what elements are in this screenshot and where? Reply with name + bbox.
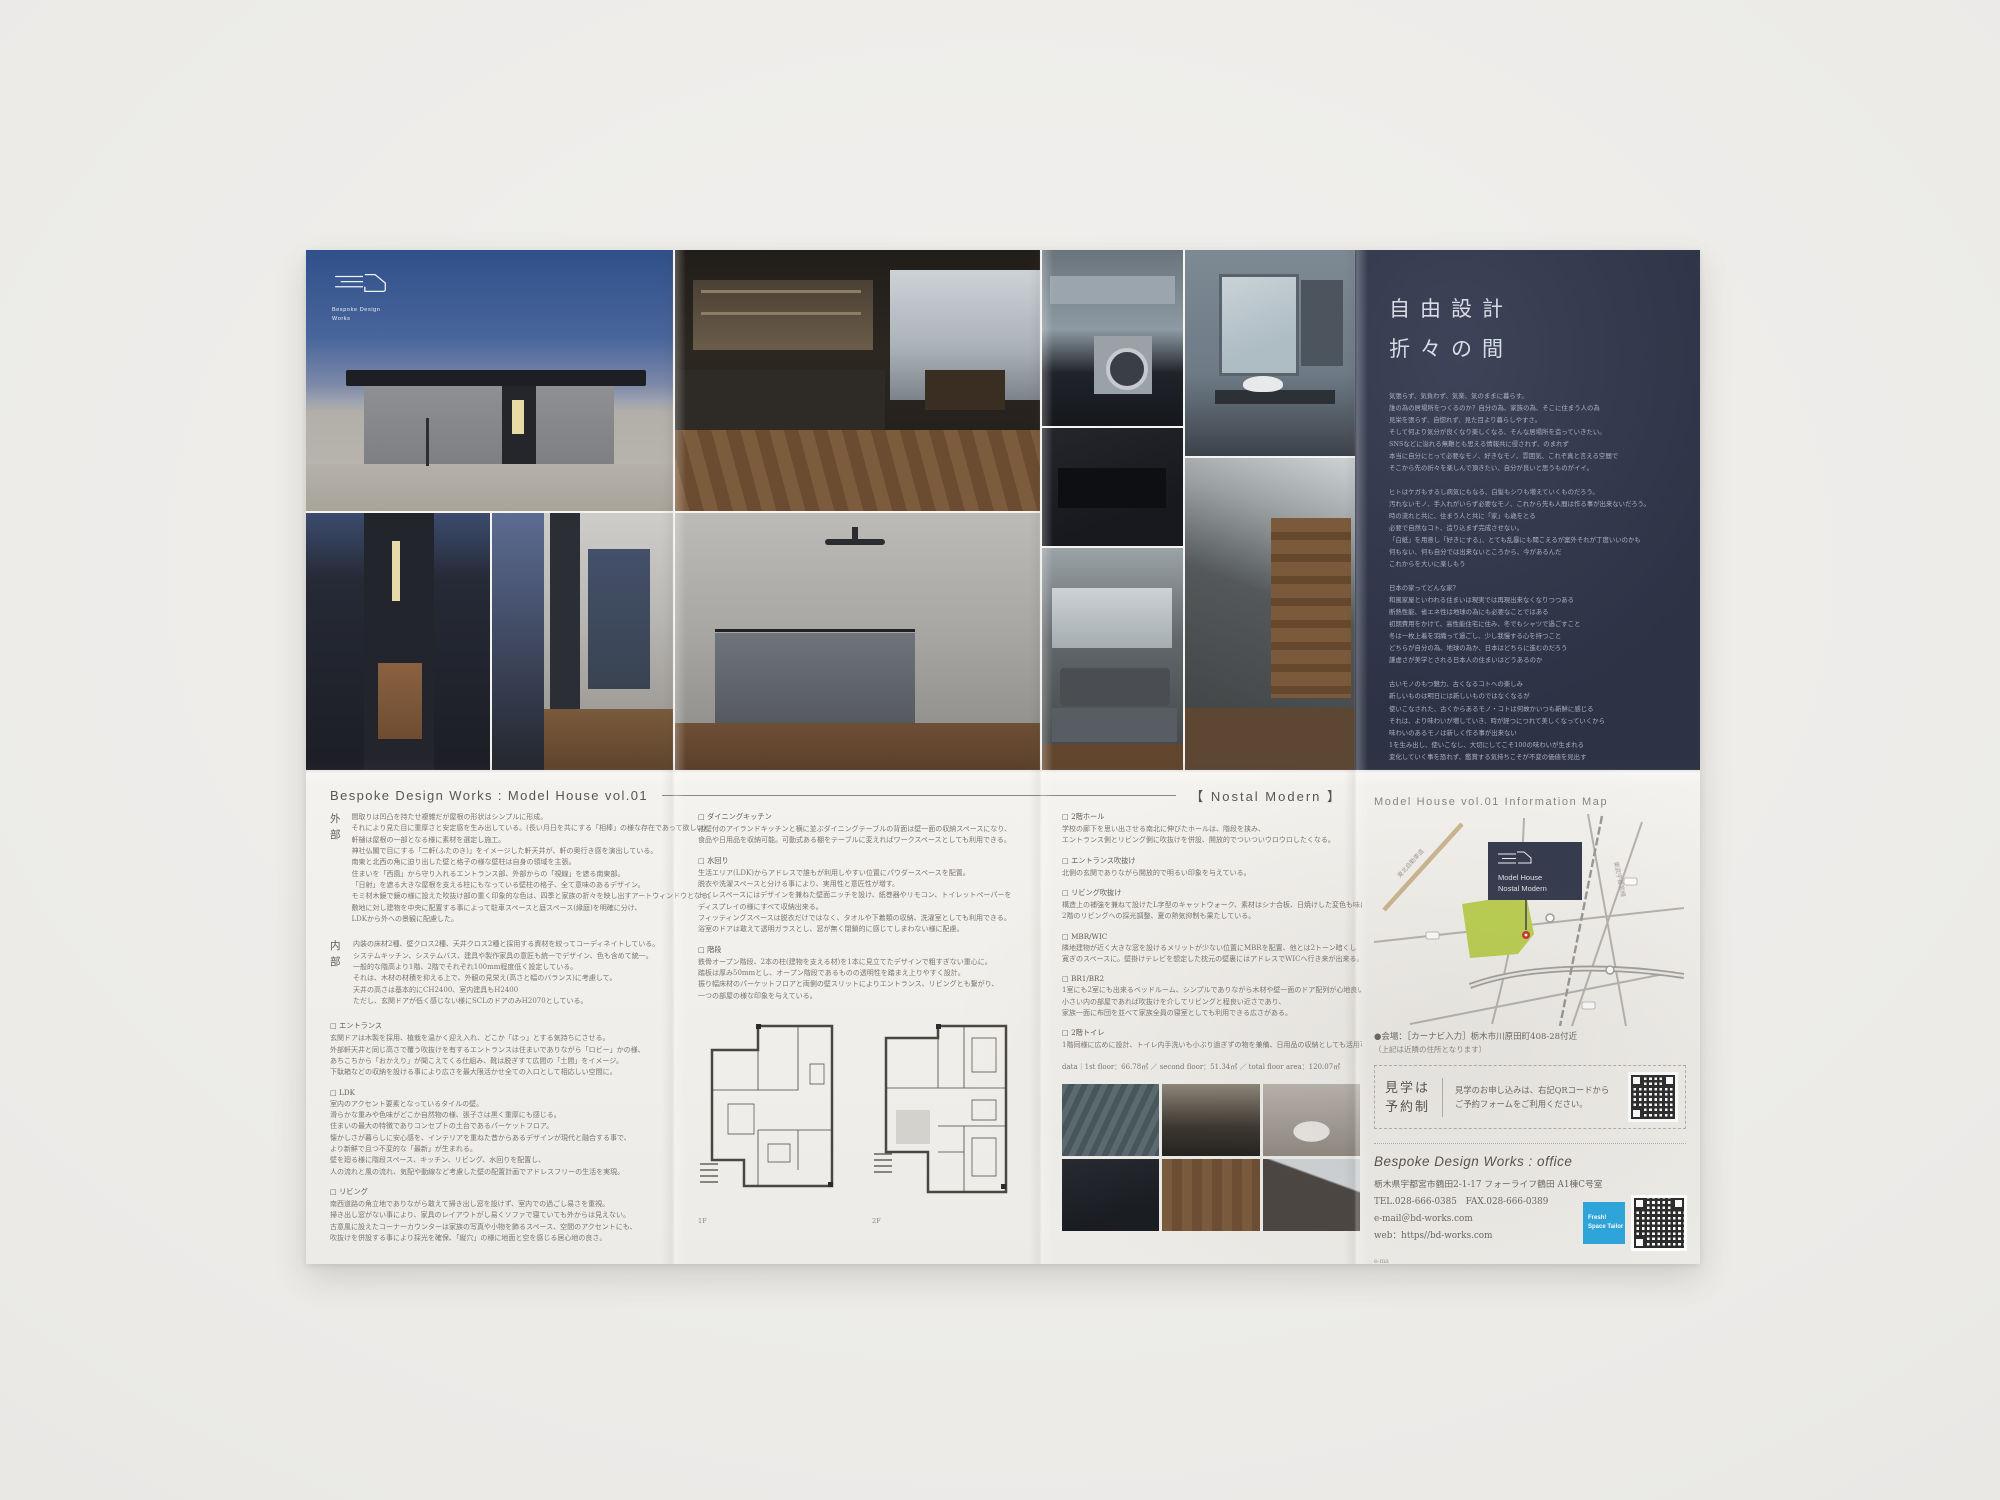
office-title: Bespoke Design Works : office (1374, 1154, 1686, 1169)
print-mark: e-ma (1374, 1258, 1686, 1265)
office-badges: Fresh! Space Tailor (1583, 1198, 1684, 1248)
subsection-mbr-wic-label: □ MBR/WIC (1062, 932, 1362, 941)
badge-line1: Fresh! (1588, 1214, 1625, 1223)
kitchen-shelf-line (701, 290, 861, 293)
subsection-entrance-lines: 玄関ドアは木製を採用、植栽を温かく迎え入れ、どこか「ほっ」とする気持ちにさせる。… (330, 1033, 664, 1078)
kitchen-photo (675, 250, 1040, 511)
stair-void (715, 633, 915, 723)
landing-floor (675, 723, 1040, 770)
reservation-badge: 見学は 予約制 (1385, 1078, 1443, 1117)
subsection-living: □ リビング 南西道路の角立地でありながら敢えて掃き出し窓を設けず、室内での過ご… (330, 1187, 664, 1244)
vanity-photo (1185, 250, 1355, 456)
column-kitchen-stairs: □ ダイニングキッチン 袖壁付のアイランドキッチンと横に並ぶダイニングテーブルの… (698, 812, 1032, 1011)
section-interior-lines: 内装の床材2種、壁クロス2種、天井クロス2種と採用する資材を絞ってコーディネイト… (353, 939, 664, 1007)
section-exterior-lines: 間取りは凹凸を持たせ複雑だが屋根の形状はシンプルに形成。それにより見た目に重厚さ… (352, 812, 715, 925)
laundry-photo (1042, 250, 1183, 426)
living-window (1052, 588, 1172, 648)
brand-logo-block: Bespoke Design Works (332, 270, 394, 325)
concept-panel: 自由設計 折々の間 気張らず、気負わず、気楽、気のままに暮らす。誰の為の居場所を… (1355, 250, 1700, 770)
section-exterior-label: 外部 (330, 812, 342, 925)
subsection-mbr-wic: □ MBR/WIC 隣地建物が近く大きな窓を設けるメリットが少ない位置にMBRを… (1062, 932, 1362, 966)
facade-lit-slit (392, 541, 400, 601)
reservation-qr-code (1631, 1075, 1675, 1119)
floor-plan-2f-drawing (872, 1014, 1020, 1214)
concept-title-line1: 自由設計 (1389, 290, 1670, 330)
hall-fan-photo (675, 513, 1040, 770)
railing (715, 629, 915, 632)
dining-table (925, 370, 1005, 410)
subsection-dining-kitchen-lines: 袖壁付のアイランドキッチンと横に並ぶダイニングテーブルの背面は壁一面の収納スペー… (698, 824, 1032, 847)
floor-plans: 1F 2F (698, 1014, 1028, 1225)
hall-dusk-opening (492, 513, 544, 770)
subsection-living-void-label: □ リビング吹抜け (1062, 888, 1362, 898)
reservation-box: 見学は 予約制 見学のお申し込みは、右記QRコードから ご予約フォームをご利用く… (1374, 1065, 1686, 1129)
tree-trunk (426, 418, 429, 466)
badge-line2: Space Tailor (1588, 1223, 1625, 1232)
subsection-ldk-lines: 室内のアクセント要素となっているタイルの壁。滑らかな重みや色味がどこか自然物の様… (330, 1099, 664, 1178)
living-floor-left (1042, 744, 1183, 770)
reservation-text-line1: 見学のお申し込みは、右記QRコードから (1455, 1083, 1619, 1098)
facade-night-photo (306, 513, 490, 770)
kitchen-island (675, 370, 885, 430)
lit-window (512, 400, 524, 434)
fresh-space-tailor-badge: Fresh! Space Tailor (1583, 1202, 1625, 1244)
office-address: 栃木県宇都宮市鶴田2-1-17 フォーライフ鶴田 A1棟C号室 (1374, 1177, 1686, 1194)
media-screen (1058, 468, 1166, 508)
column-exterior-interior: 外部 間取りは凹凸を持たせ複雑だが屋根の形状はシンプルに形成。それにより見た目に… (330, 812, 664, 1253)
subsection-stairs: □ 階段 鉄骨オープン階段、2本の柱(建物を支える材)を1本に見立てたデザインで… (698, 945, 1032, 1002)
collage-wood-photo (1162, 1159, 1259, 1231)
media-wall-photo (1042, 428, 1183, 546)
map-callout-line1: Model House (1498, 873, 1542, 882)
vanity-shelf (1301, 280, 1343, 366)
subsection-water-area: □ 水回り 生活エリア(LDK)からアドレスで誰もが利用しやすい位置にパウダース… (698, 856, 1032, 936)
living-floor-right (1185, 708, 1355, 770)
subsection-entrance-void: □ エントランス吹抜け 北側の玄関でありながら開放的で明るい印象を与えている。 (1062, 856, 1362, 879)
roof-silhouette (346, 370, 646, 386)
subsection-water-area-label: □ 水回り (698, 856, 1032, 866)
subsection-living-void: □ リビング吹抜け 構造上の補強を兼ねて設けたL字型のキャットウォーク、素材はシ… (1062, 888, 1362, 923)
section-interior-label: 内部 (330, 939, 343, 1007)
hall-wood-floor (544, 709, 673, 770)
basin (1243, 376, 1283, 392)
subsection-br1-br2: □ BR1/BR2 1室にも2室にも出来るベッドルーム、シンプルでありながら木材… (1062, 974, 1362, 1019)
section-interior: 内部 内装の床材2種、壁クロス2種、天井クロス2種と採用する資材を絞ってコーディ… (330, 939, 664, 1007)
header-rule (662, 795, 1176, 796)
brand-logo-line2: Works (332, 315, 394, 324)
section-exterior: 外部 間取りは凹凸を持たせ複雑だが屋根の形状はシンプルに形成。それにより見た目に… (330, 812, 664, 925)
subsection-entrance-void-lines: 北側の玄関でありながら開放的で明るい印象を与えている。 (1062, 868, 1362, 879)
reservation-text: 見学のお申し込みは、右記QRコードから ご予約フォームをご利用ください。 (1455, 1083, 1619, 1113)
subsection-ldk-label: □ LDK (330, 1088, 664, 1097)
venue-line: ●会場：［カーナビ入力］栃木市川原田町408-28付近 (1374, 1030, 1686, 1044)
office-block: Bespoke Design Works : office 栃木県宇都宮市鶴田2… (1374, 1154, 1686, 1265)
detail-photo-collage (1062, 1084, 1360, 1231)
subsection-water-area-lines: 生活エリア(LDK)からアドレスで誰もが利用しやすい位置にパウダースペースを配置… (698, 868, 1032, 936)
concept-title: 自由設計 折々の間 (1389, 290, 1670, 370)
ceiling-fan-stem (852, 527, 858, 545)
subsection-entrance: □ エントランス 玄関ドアは木製を採用、植栽を温かく迎え入れ、どこか「ほっ」とす… (330, 1021, 664, 1078)
subsection-2f-toilet-lines: 1階同様に広めに設計、トイレ内手洗いも小ぶり過ぎずの物を兼備、日用品の収納として… (1062, 1040, 1362, 1051)
laundry-cabinet (1050, 276, 1175, 304)
reservation-badge-line2: 予約制 (1385, 1097, 1430, 1117)
subsection-stairs-lines: 鉄骨オープン階段、2本の柱(建物を支える材)を1本に見立てたデザインで粗すぎない… (698, 957, 1032, 1002)
subsection-2f-toilet-label: □ 2階トイレ (1062, 1028, 1362, 1038)
collage-stairs-window-photo (1263, 1159, 1360, 1231)
concept-paragraph-2: ヒトはケガもするし病気にもなる、白髪もシワも増えていくものだろう。汚れないモノ、… (1389, 486, 1670, 570)
subsection-entrance-void-label: □ エントランス吹抜け (1062, 856, 1362, 866)
expressway-road (1384, 824, 1462, 910)
venue-note: （上記は近隣の住所となります） (1374, 1044, 1686, 1055)
office-qr-code (1634, 1198, 1684, 1248)
vanity-counter (1215, 390, 1335, 404)
floor-plan-2f-label: 2F (872, 1217, 1020, 1225)
floor-plan-1f: 1F (698, 1014, 846, 1225)
subsection-stairs-label: □ 階段 (698, 945, 1032, 955)
brand-logo-line1: Bespoke Design (332, 306, 394, 315)
works-header: Bespoke Design Works : Model House vol.0… (330, 786, 1342, 805)
map-title: Model House vol.01 Information Map (1374, 796, 1686, 808)
subsection-ldk: □ LDK 室内のアクセント要素となっているタイルの壁。滑らかな重みや色味がどこ… (330, 1088, 664, 1178)
subsection-br1-br2-label: □ BR1/BR2 (1062, 974, 1362, 983)
collage-toilet-photo (1263, 1084, 1360, 1156)
hall-dark-door (550, 513, 580, 709)
subsection-living-label: □ リビング (330, 1187, 664, 1197)
kitchen-shelf-line2 (701, 312, 861, 315)
subsection-2f-toilet: □ 2階トイレ 1階同様に広めに設計、トイレ内手洗いも小ぶり過ぎずの物を兼備、日… (1062, 1028, 1362, 1051)
nostal-modern-tagline: 【 Nostal Modern 】 (1190, 786, 1342, 805)
subsection-br1-br2-lines: 1室にも2室にも出来るベッドルーム、シンプルでありながら木材や壁一面のドア配列が… (1062, 985, 1362, 1019)
subsection-dining-kitchen: □ ダイニングキッチン 袖壁付のアイランドキッチンと横に並ぶダイニングテーブルの… (698, 812, 1032, 847)
subsection-2f-hall-lines: 学校の廊下を思い出させる南北に伸びたホールは、階段を挟み、エントランス側とリビン… (1062, 824, 1362, 847)
park-green-area (1462, 894, 1534, 958)
dotted-divider (1374, 1143, 1686, 1144)
floor-plan-1f-drawing (698, 1014, 846, 1214)
concept-paragraph-3: 日本の家ってどんな家？和風家屋といわれる住まいは現実では再現出来なくなりつつある… (1389, 582, 1670, 666)
map-road-label: 東北自動車道 (1396, 847, 1426, 879)
concept-paragraph-1: 気張らず、気負わず、気楽、気のままに暮らす。誰の為の居場所をつくるのか？自分の為… (1389, 390, 1670, 474)
exterior-dusk-photo: Bespoke Design Works (306, 250, 673, 511)
entrance-hall-photo (492, 513, 673, 770)
floor-plan-2f: 2F (872, 1014, 1020, 1225)
subsection-entrance-label: □ エントランス (330, 1021, 664, 1031)
mirror (1219, 274, 1299, 376)
collage-kitchen-detail-photo (1162, 1084, 1259, 1156)
subsection-mbr-wic-lines: 隣地建物が近く大きな窓を設けるメリットが少ない位置にMBRを配置、他とは2トーン… (1062, 943, 1362, 966)
sofa (1060, 668, 1170, 706)
gravel-ground (306, 464, 673, 511)
subsection-dining-kitchen-label: □ ダイニングキッチン (698, 812, 1032, 822)
reservation-badge-line1: 見学は (1385, 1078, 1430, 1098)
map-callout-line2: Nostal Modern (1498, 884, 1547, 893)
floor-area-data: data｜1st floor：66.78㎡ ／ second floor：51.… (1062, 1062, 1362, 1072)
parquet-floor (675, 430, 1040, 511)
living-stairs-photo-right (1185, 458, 1355, 770)
washer-door (1106, 348, 1148, 390)
concept-paragraph-4: 古いモノのもつ魅力、古くなるコトへの楽しみ新しいものは明日には新しいものではなく… (1389, 678, 1670, 762)
living-stairs-photo-left (1042, 548, 1183, 770)
brand-logo-text: Bespoke Design Works (332, 306, 394, 325)
column-second-floor: □ 2階ホール 学校の廊下を思い出させる南北に伸びたホールは、階段を挟み、エント… (1062, 812, 1362, 1231)
collage-dark-tile-photo (1062, 1159, 1159, 1231)
subsection-living-lines: 南西道路の角立地でありながら敢えて掃き出し窓を設けず、室内での過ごし易さを重視。… (330, 1199, 664, 1244)
information-panel: Model House vol.01 Information Map (1374, 796, 1686, 1265)
subsection-living-void-lines: 構造上の補強を兼ねて設けたL字型のキャットウォーク、素材はシナ合板、日焼けした変… (1062, 900, 1362, 923)
brochure-sheet: Bespoke Design Works (306, 250, 1700, 1264)
wood-door (378, 663, 422, 739)
floor-plan-1f-label: 1F (698, 1217, 846, 1225)
house-wall (364, 386, 614, 464)
brand-logo-icon (332, 270, 394, 296)
hall-stone-wall (588, 549, 650, 689)
collage-texture-photo (1062, 1084, 1159, 1156)
reservation-text-line2: ご予約フォームをご利用ください。 (1455, 1097, 1619, 1112)
information-map: Model House Nostal Modern 東北自動車道 東武宇都宮線 (1374, 814, 1684, 1026)
rug (1052, 708, 1177, 742)
subsection-2f-hall-label: □ 2階ホール (1062, 812, 1362, 822)
subsection-2f-hall: □ 2階ホール 学校の廊下を思い出させる南北に伸びたホールは、階段を挟み、エント… (1062, 812, 1362, 847)
wood-stairs (1271, 518, 1351, 698)
works-title: Bespoke Design Works : Model House vol.0… (330, 788, 648, 803)
concept-title-line2: 折々の間 (1389, 330, 1670, 370)
